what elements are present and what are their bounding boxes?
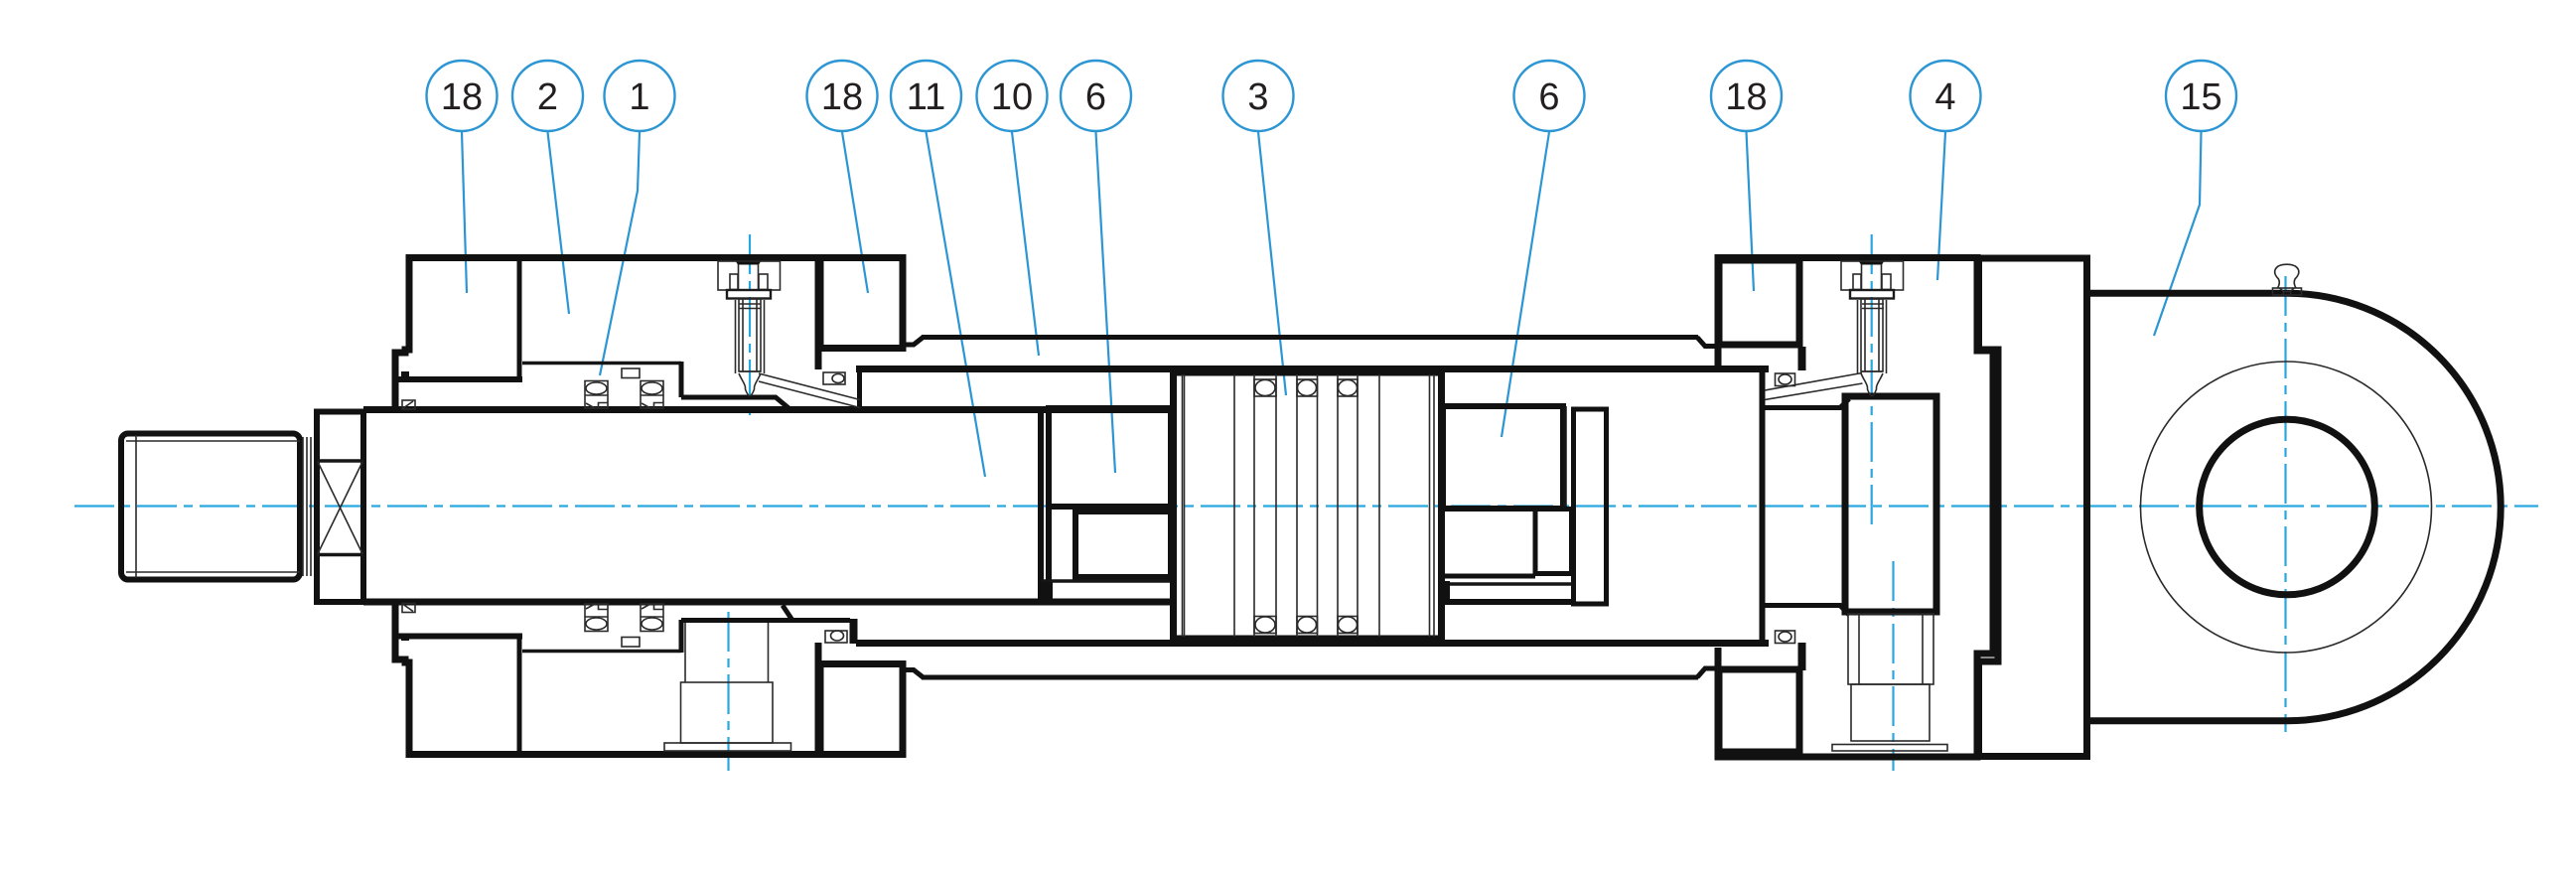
svg-text:1: 1	[629, 76, 649, 118]
svg-text:15: 15	[2180, 76, 2221, 118]
svg-text:4: 4	[1934, 76, 1955, 118]
svg-text:11: 11	[907, 76, 945, 118]
svg-text:6: 6	[1085, 76, 1106, 118]
svg-text:18: 18	[1725, 76, 1767, 118]
svg-text:3: 3	[1247, 76, 1268, 118]
svg-text:18: 18	[821, 76, 863, 118]
svg-text:10: 10	[991, 76, 1033, 118]
svg-text:6: 6	[1538, 76, 1559, 118]
svg-text:2: 2	[537, 76, 558, 118]
svg-text:18: 18	[441, 76, 483, 118]
